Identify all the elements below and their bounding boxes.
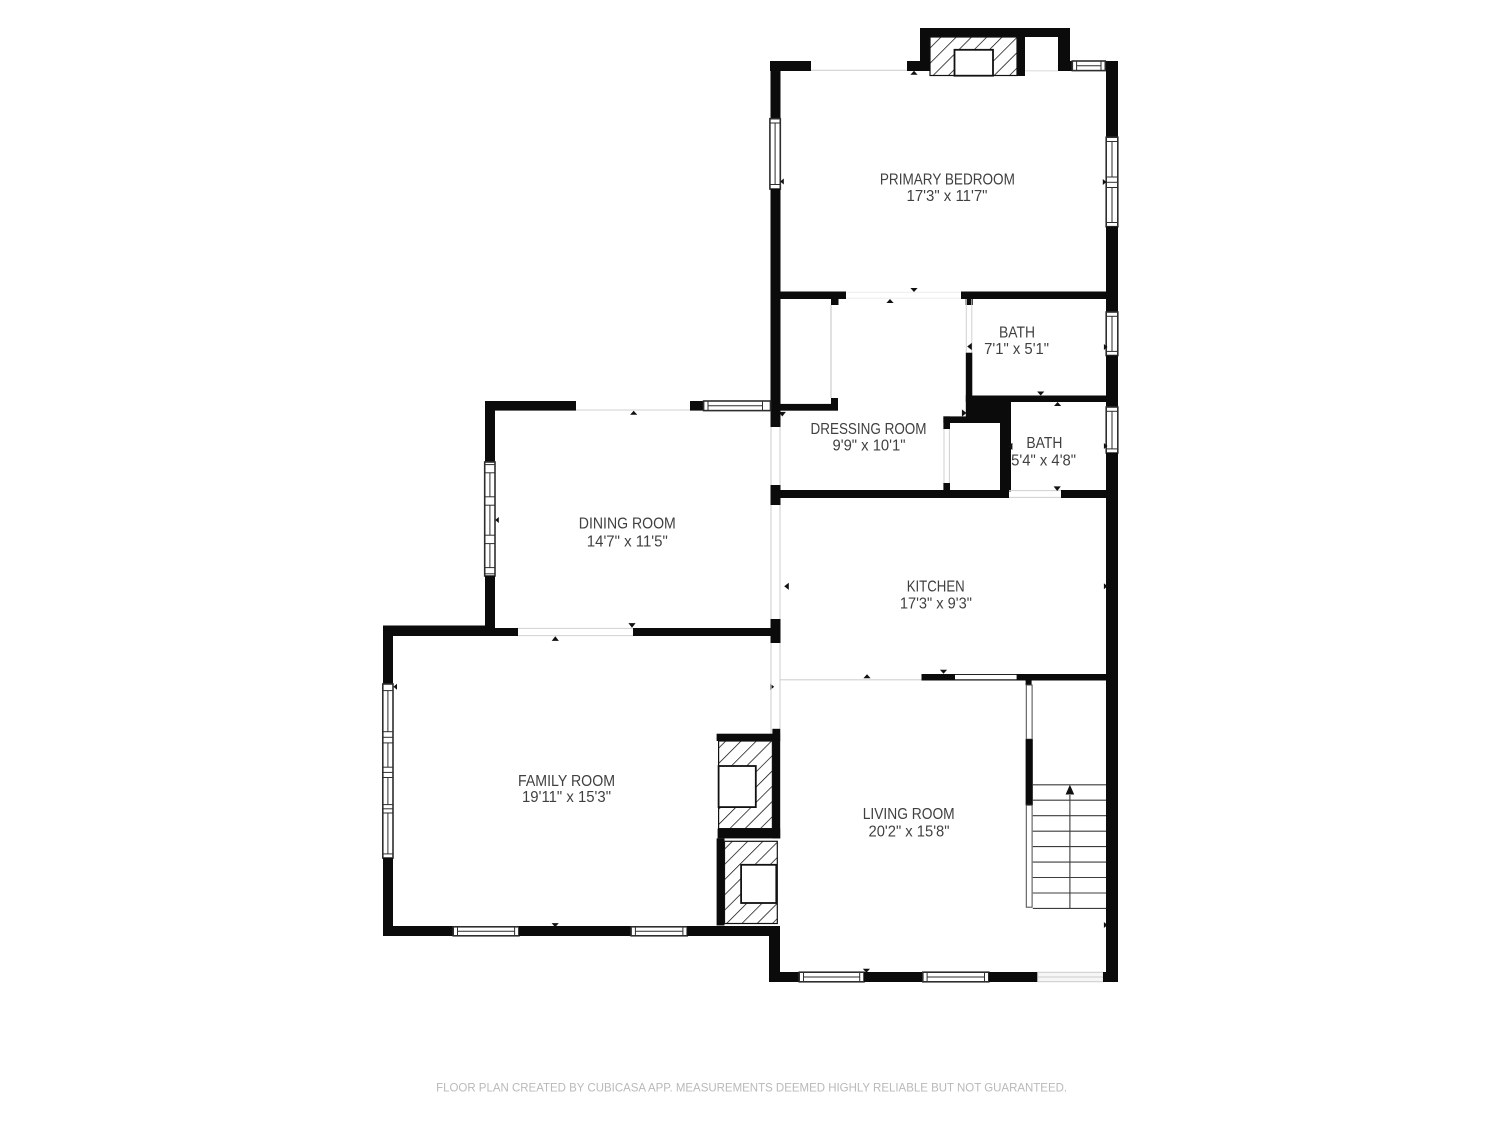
svg-text:17'3" x 9'3": 17'3" x 9'3"	[900, 596, 972, 613]
svg-text:BATH: BATH	[999, 324, 1035, 341]
svg-text:FLOOR PLAN CREATED BY CUBICASA: FLOOR PLAN CREATED BY CUBICASA APP. MEAS…	[436, 1080, 1067, 1094]
svg-text:17'3" x 11'7": 17'3" x 11'7"	[907, 188, 988, 205]
svg-text:19'11" x 15'3": 19'11" x 15'3"	[522, 789, 611, 806]
svg-text:PRIMARY BEDROOM: PRIMARY BEDROOM	[880, 171, 1015, 188]
svg-text:9'9" x 10'1": 9'9" x 10'1"	[833, 438, 906, 455]
svg-text:KITCHEN: KITCHEN	[907, 579, 965, 596]
svg-text:LIVING ROOM: LIVING ROOM	[863, 806, 955, 823]
svg-text:20'2" x 15'8": 20'2" x 15'8"	[869, 823, 950, 840]
svg-text:7'1" x 5'1": 7'1" x 5'1"	[984, 341, 1049, 358]
svg-text:DRESSING ROOM: DRESSING ROOM	[811, 421, 927, 438]
svg-text:5'4" x 4'8": 5'4" x 4'8"	[1011, 453, 1076, 470]
svg-text:DINING ROOM: DINING ROOM	[579, 516, 676, 533]
svg-text:14'7" x 11'5": 14'7" x 11'5"	[587, 534, 668, 551]
svg-text:FAMILY ROOM: FAMILY ROOM	[518, 773, 615, 790]
svg-text:BATH: BATH	[1026, 435, 1062, 452]
